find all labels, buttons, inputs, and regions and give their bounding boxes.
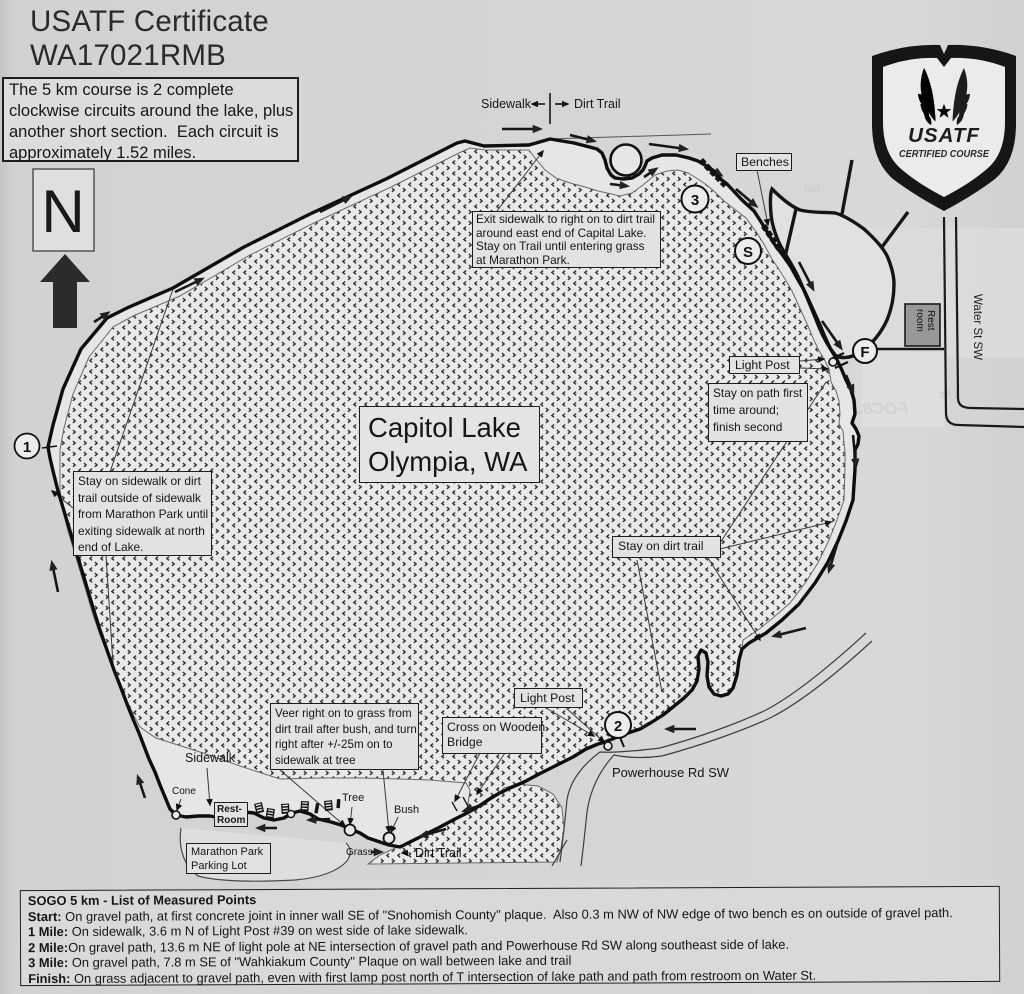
svg-text:F: F — [860, 344, 869, 361]
svg-text:1: 1 — [23, 439, 31, 456]
svg-text:2: 2 — [614, 718, 622, 735]
svg-text:room: room — [914, 309, 925, 332]
svg-text:USATF: USATF — [908, 124, 980, 147]
svg-text:Water St SW: Water St SW — [971, 294, 983, 360]
svg-text:B&I: B&I — [804, 184, 820, 195]
svg-text:3: 3 — [691, 192, 699, 209]
svg-text:FOC8J: FOC8J — [853, 399, 908, 418]
svg-text:CERTIFIED COURSE: CERTIFIED COURSE — [899, 149, 989, 160]
svg-text:Rest: Rest — [925, 310, 936, 331]
svg-text:N: N — [41, 178, 84, 245]
svg-text:S: S — [743, 244, 753, 261]
